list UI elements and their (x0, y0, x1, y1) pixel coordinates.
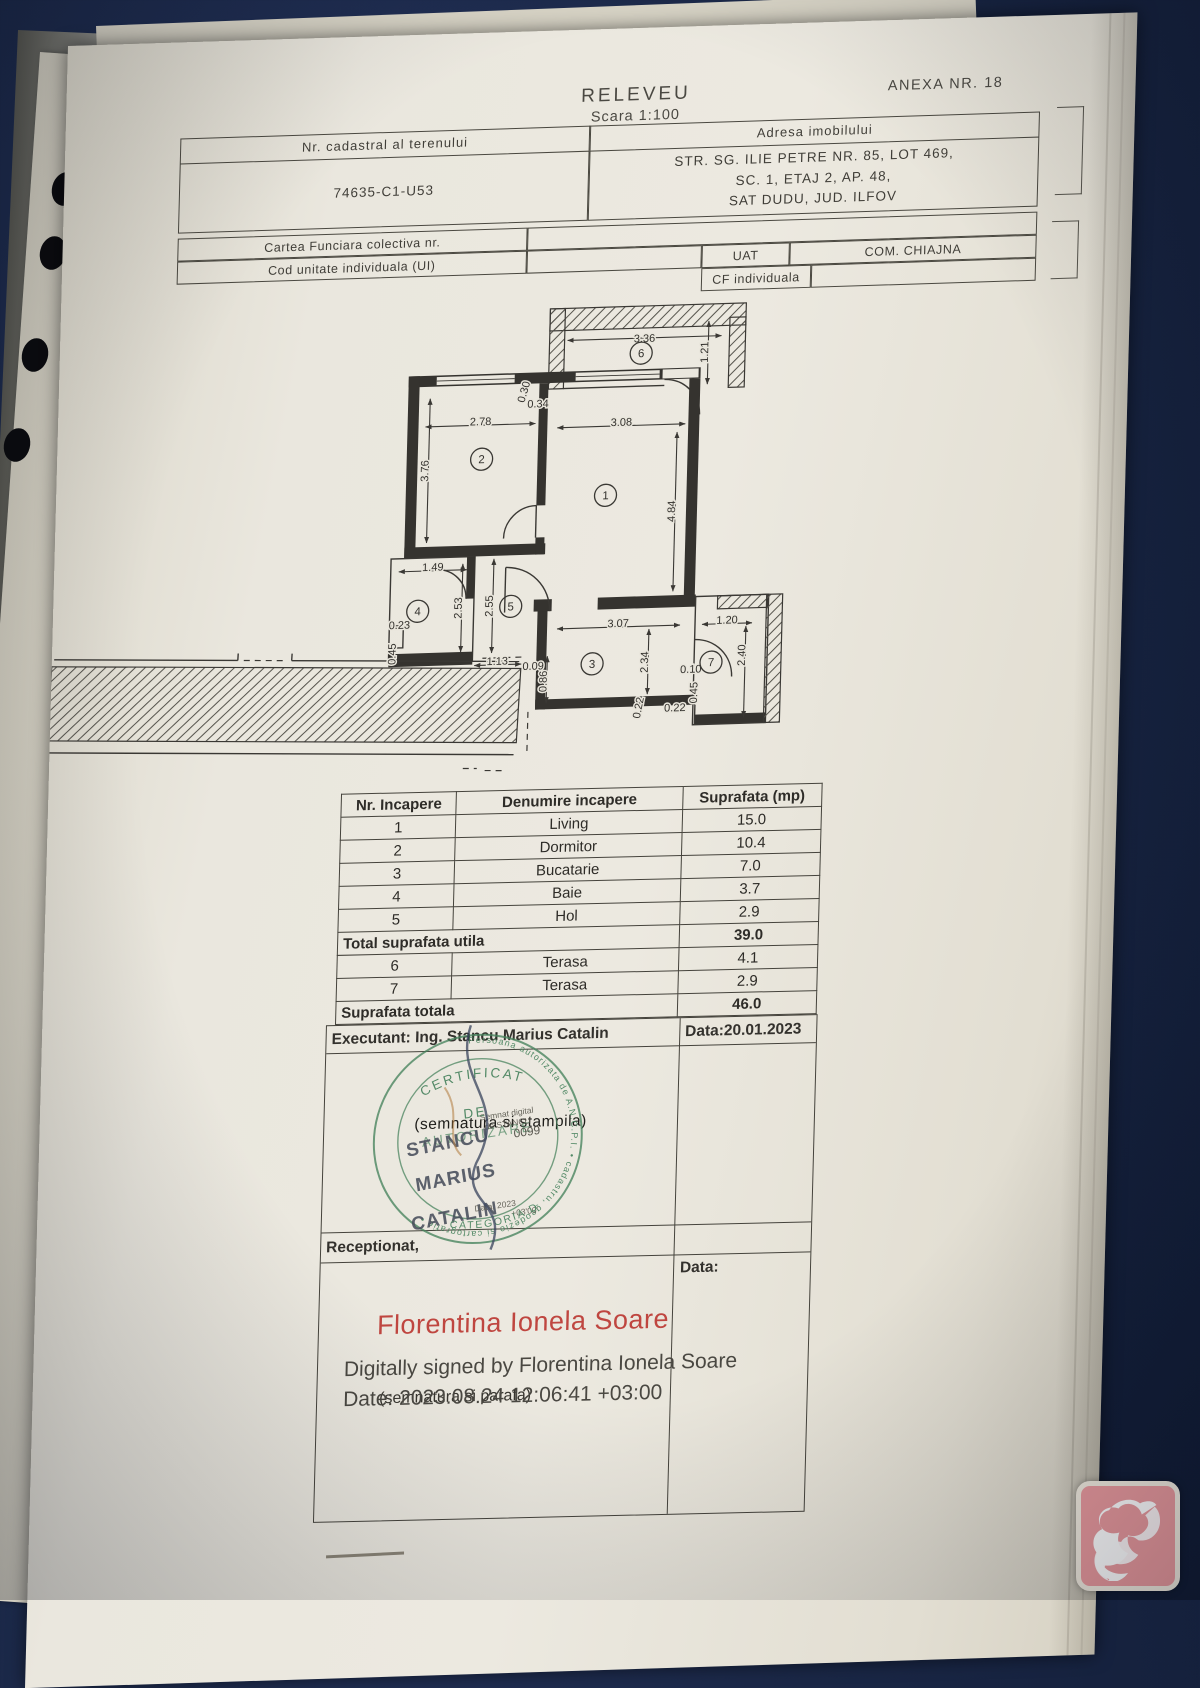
dimension-label: 3.08 (611, 416, 633, 429)
authorization-stamp: Persoana autorizata de A.N.C.P.I. • cada… (351, 1005, 604, 1272)
terrace7-east-wall (763, 594, 782, 723)
dimension-label: 2.34 (639, 651, 652, 673)
dimension-label: 2.55 (483, 595, 496, 617)
room-number-5: 5 (499, 595, 522, 618)
dimension-label: 0.86 (537, 670, 550, 692)
uat-label: UAT (701, 242, 790, 268)
svg-text:4: 4 (414, 606, 421, 618)
stamp-area: (semnatura si stampila) Persoana autoriz… (322, 1043, 816, 1233)
dimension-label: 1.21 (699, 341, 712, 363)
room-number-7: 7 (700, 651, 723, 674)
page-edge-table-mark (1055, 106, 1084, 195)
svg-text:7: 7 (708, 657, 715, 669)
dimension-label: 2.40 (736, 644, 749, 666)
room-number-3: 3 (581, 652, 604, 675)
dimension-label: 2.78 (470, 416, 492, 429)
page-edge-table-mark (1051, 220, 1080, 279)
building-wall-band (48, 653, 522, 771)
signature-box: Executant: Ing. Stancu Marius Catalin Da… (313, 1014, 818, 1523)
svg-text:2: 2 (478, 454, 485, 466)
east-wall (684, 378, 701, 603)
dimension-label: 0.45 (688, 682, 701, 704)
dimension-label: 3.07 (607, 618, 629, 631)
room-number-1: 1 (594, 484, 617, 507)
svg-text:1: 1 (602, 490, 609, 502)
stamp-name-line2: MARIUS (414, 1160, 497, 1196)
dimension-label: 1.13 (486, 655, 508, 668)
dimension-label: 4.84 (666, 500, 679, 522)
col-header-nr: Nr. Incapere (341, 792, 457, 818)
dimension-label: 0.23 (389, 620, 411, 633)
terrace6-top-wall (550, 303, 746, 331)
dimension-label: 0.45 (386, 643, 399, 665)
dimension-label: 1.49 (422, 561, 444, 574)
data-label: Data: (680, 1258, 719, 1277)
executant-date: Data:20.01.2023 (679, 1015, 817, 1045)
cod-ui-value (526, 245, 702, 274)
dimension-label: 1.20 (716, 614, 738, 627)
svg-text:5: 5 (507, 601, 514, 613)
dimension-label: 3.76 (419, 460, 432, 482)
signer-name: Florentina Ionela Soare (377, 1304, 670, 1342)
svg-text:6: 6 (638, 348, 645, 360)
svg-text:3: 3 (589, 659, 596, 671)
annex-label: ANEXA NR. 18 (888, 75, 1004, 95)
col-header-area: Suprafata (mp) (682, 783, 822, 809)
dimension-label: 0.34 (527, 398, 549, 411)
room2-door-arc (504, 506, 537, 539)
floor-plan: 3.361.210.300.342.783.083.764.841.492.53… (48, 290, 831, 810)
address-lines: STR. SG. ILIE PETRE NR. 85, LOT 469,SC. … (588, 137, 1040, 221)
digital-signature-line2: Date: 2023.08.24 12:06:41 +03:00 (343, 1381, 663, 1411)
west-wall (404, 376, 420, 559)
room-number-6: 6 (630, 342, 653, 365)
room-table-body: 1Living15.02Dormitor10.43Bucatarie7.04Ba… (335, 806, 821, 1024)
digital-signature-area: Data: Florentina Ionela Soare Digitally … (314, 1252, 810, 1521)
digital-signature-text: Digitally signed by Florentina Ionela So… (343, 1344, 844, 1416)
dimension-label: 0.22 (664, 702, 686, 715)
room-table: Nr. Incapere Denumire incapere Suprafata… (335, 783, 823, 1025)
room-number-4: 4 (406, 600, 429, 623)
cf-individuala-label: CF individuala (701, 265, 812, 291)
dimension-label: 0.10 (680, 663, 702, 676)
dove-watermark-logo (1076, 1481, 1180, 1591)
pen-dash-mark (326, 1552, 404, 1559)
cadastral-number-value: 74635-C1-U53 (178, 151, 590, 234)
dimension-label: 2.53 (452, 597, 465, 619)
dove-icon (1085, 1491, 1171, 1581)
document-page: RELEVEU Scara 1:100 ANEXA NR. 18 Nr. cad… (25, 12, 1137, 1688)
lower-block: Nr. Incapere Denumire incapere Suprafata… (313, 783, 824, 1523)
room-number-2: 2 (470, 448, 493, 471)
